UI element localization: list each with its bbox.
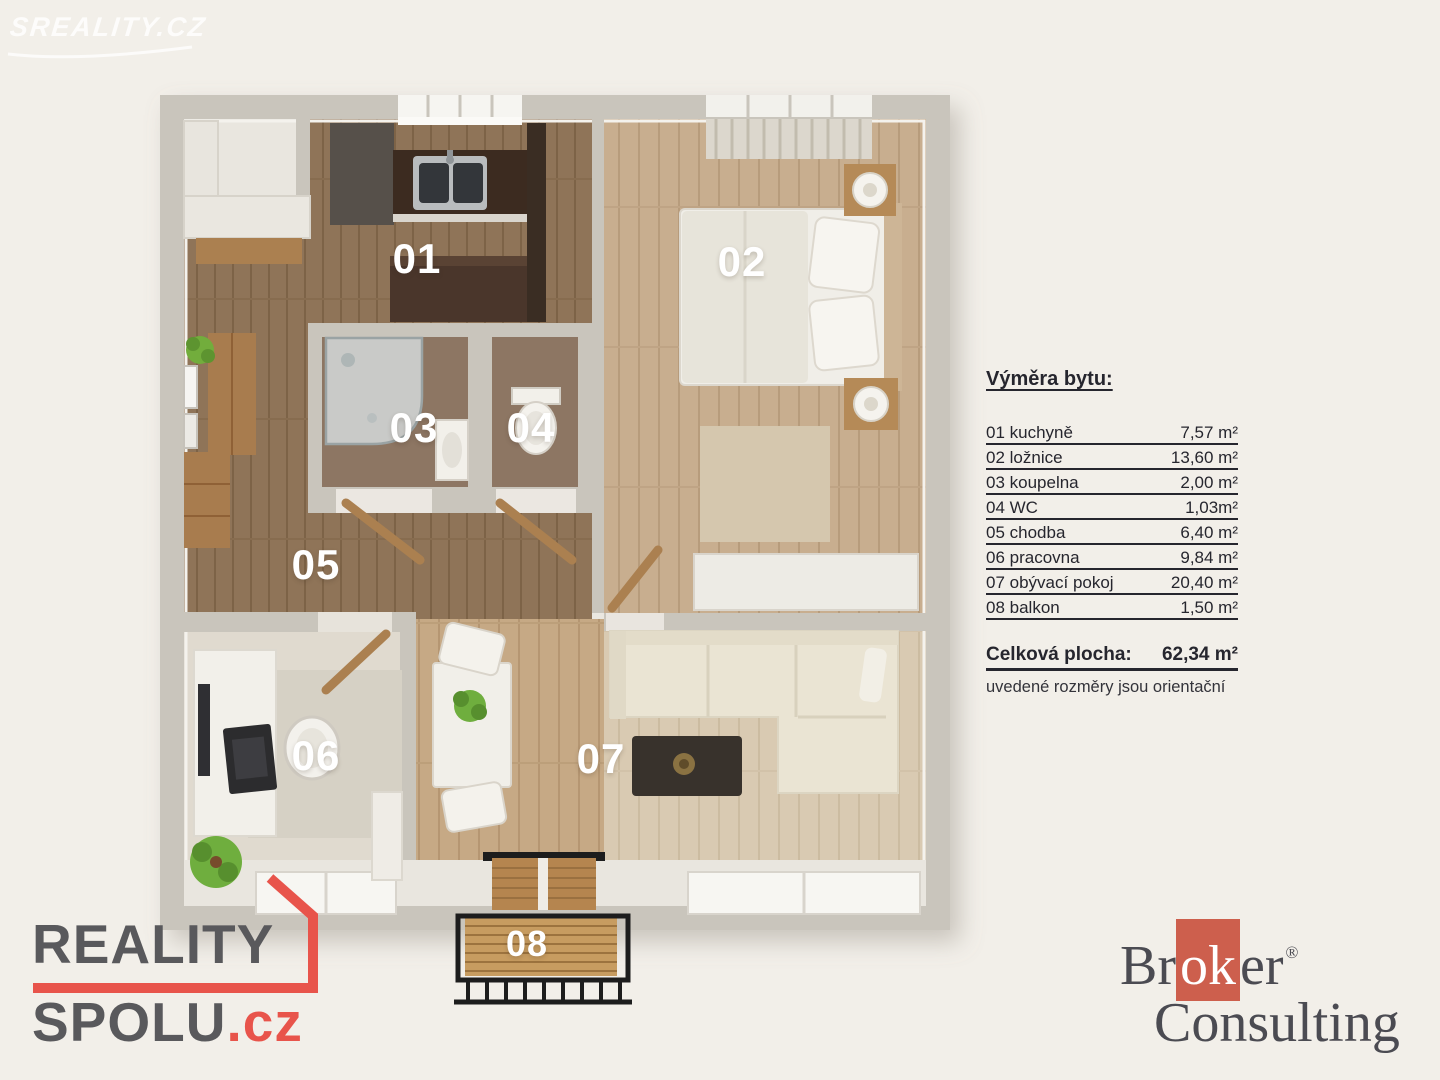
dining-table bbox=[433, 663, 511, 787]
bedroom-rug bbox=[700, 426, 830, 542]
legend-row: 07 obývací pokoj 20,40 m² bbox=[986, 573, 1238, 595]
bedroom-window bbox=[706, 95, 872, 159]
pillow bbox=[808, 216, 880, 293]
legend-room-name: 01 kuchyně bbox=[986, 423, 1073, 442]
legend-row: 06 pracovna 9,84 m² bbox=[986, 548, 1238, 570]
broker-consulting-logo: Broker® Consulting bbox=[1100, 938, 1400, 1051]
broker-part3: er bbox=[1240, 935, 1284, 997]
legend-rows: 01 kuchyně 7,57 m² 02 ložnice 13,60 m² 0… bbox=[986, 423, 1238, 620]
legend-total: Celková plocha: 62,34 m² bbox=[986, 644, 1238, 671]
legend-row: 05 chodba 6,40 m² bbox=[986, 523, 1238, 545]
area-legend: Výměra bytu: 01 kuchyně 7,57 m² 02 ložni… bbox=[986, 368, 1238, 697]
legend-row: 08 balkon 1,50 m² bbox=[986, 598, 1238, 620]
monitor bbox=[198, 684, 210, 776]
kitchen-window bbox=[398, 95, 522, 125]
legend-room-area: 2,00 m² bbox=[1180, 473, 1238, 492]
entry-counter bbox=[184, 196, 310, 238]
page: 01 02 03 04 05 06 07 08 Sreality.cz Výmě… bbox=[0, 0, 1440, 1080]
room-label-06: 06 bbox=[292, 732, 341, 780]
reality-spolu-line1: REALITY bbox=[32, 916, 303, 972]
room-label-03: 03 bbox=[390, 404, 439, 452]
legend-note: uvedené rozměry jsou orientační bbox=[986, 678, 1238, 697]
reality-spolu-word: SPOLU bbox=[32, 991, 226, 1053]
legend-room-area: 1,03m² bbox=[1185, 498, 1238, 517]
legend-room-area: 6,40 m² bbox=[1180, 523, 1238, 542]
legend-row: 02 ložnice 13,60 m² bbox=[986, 448, 1238, 470]
kitchen-tall-cabinet bbox=[527, 123, 546, 322]
legend-room-name: 08 balkon bbox=[986, 598, 1060, 617]
broker-red-square: ok bbox=[1176, 919, 1240, 1001]
legend-room-name: 05 chodba bbox=[986, 523, 1065, 542]
legend-room-name: 04 WC bbox=[986, 498, 1038, 517]
legend-total-label: Celková plocha: bbox=[986, 644, 1132, 666]
office-cabinet bbox=[372, 792, 402, 880]
entry-bench bbox=[196, 238, 302, 264]
room-label-08: 08 bbox=[506, 923, 548, 965]
sideboard bbox=[184, 452, 230, 548]
legend-room-name: 06 pracovna bbox=[986, 548, 1080, 567]
legend-room-area: 9,84 m² bbox=[1180, 548, 1238, 567]
legend-title: Výměra bytu: bbox=[986, 368, 1238, 391]
reality-spolu-line2: SPOLU.cz bbox=[32, 994, 303, 1050]
broker-part1: Br bbox=[1120, 935, 1176, 997]
legend-room-area: 1,50 m² bbox=[1180, 598, 1238, 617]
room-label-04: 04 bbox=[507, 404, 556, 452]
legend-row: 03 koupelna 2,00 m² bbox=[986, 473, 1238, 495]
reality-spolu-logo: REALITY SPOLU.cz bbox=[32, 916, 303, 1050]
room-label-02: 02 bbox=[718, 238, 767, 286]
dining-chair bbox=[441, 781, 507, 833]
picture-frame bbox=[184, 366, 197, 408]
apartment bbox=[160, 95, 950, 1002]
picture-frame bbox=[184, 414, 197, 448]
consulting-line: Consulting bbox=[1154, 995, 1400, 1051]
legend-room-area: 20,40 m² bbox=[1171, 573, 1238, 592]
legend-row: 04 WC 1,03m² bbox=[986, 498, 1238, 520]
entry-shelf bbox=[184, 121, 218, 198]
legend-room-area: 13,60 m² bbox=[1171, 448, 1238, 467]
room-label-05: 05 bbox=[292, 541, 341, 589]
legend-row: 01 kuchyně 7,57 m² bbox=[986, 423, 1238, 445]
pillow bbox=[809, 295, 880, 371]
dresser bbox=[694, 554, 918, 610]
legend-room-name: 07 obývací pokoj bbox=[986, 573, 1114, 592]
room-label-01: 01 bbox=[393, 235, 442, 283]
registered-mark: ® bbox=[1286, 943, 1299, 962]
sreality-watermark: Sreality.cz bbox=[8, 12, 208, 43]
headboard bbox=[884, 203, 902, 391]
reality-spolu-tld: .cz bbox=[226, 991, 302, 1053]
legend-room-name: 03 koupelna bbox=[986, 473, 1079, 492]
legend-room-area: 7,57 m² bbox=[1180, 423, 1238, 442]
legend-room-name: 02 ložnice bbox=[986, 448, 1063, 467]
kitchen-appliance bbox=[330, 123, 394, 225]
legend-total-value: 62,34 m² bbox=[1162, 644, 1238, 666]
room-label-07: 07 bbox=[577, 735, 626, 783]
watermark-swoosh bbox=[6, 44, 196, 60]
